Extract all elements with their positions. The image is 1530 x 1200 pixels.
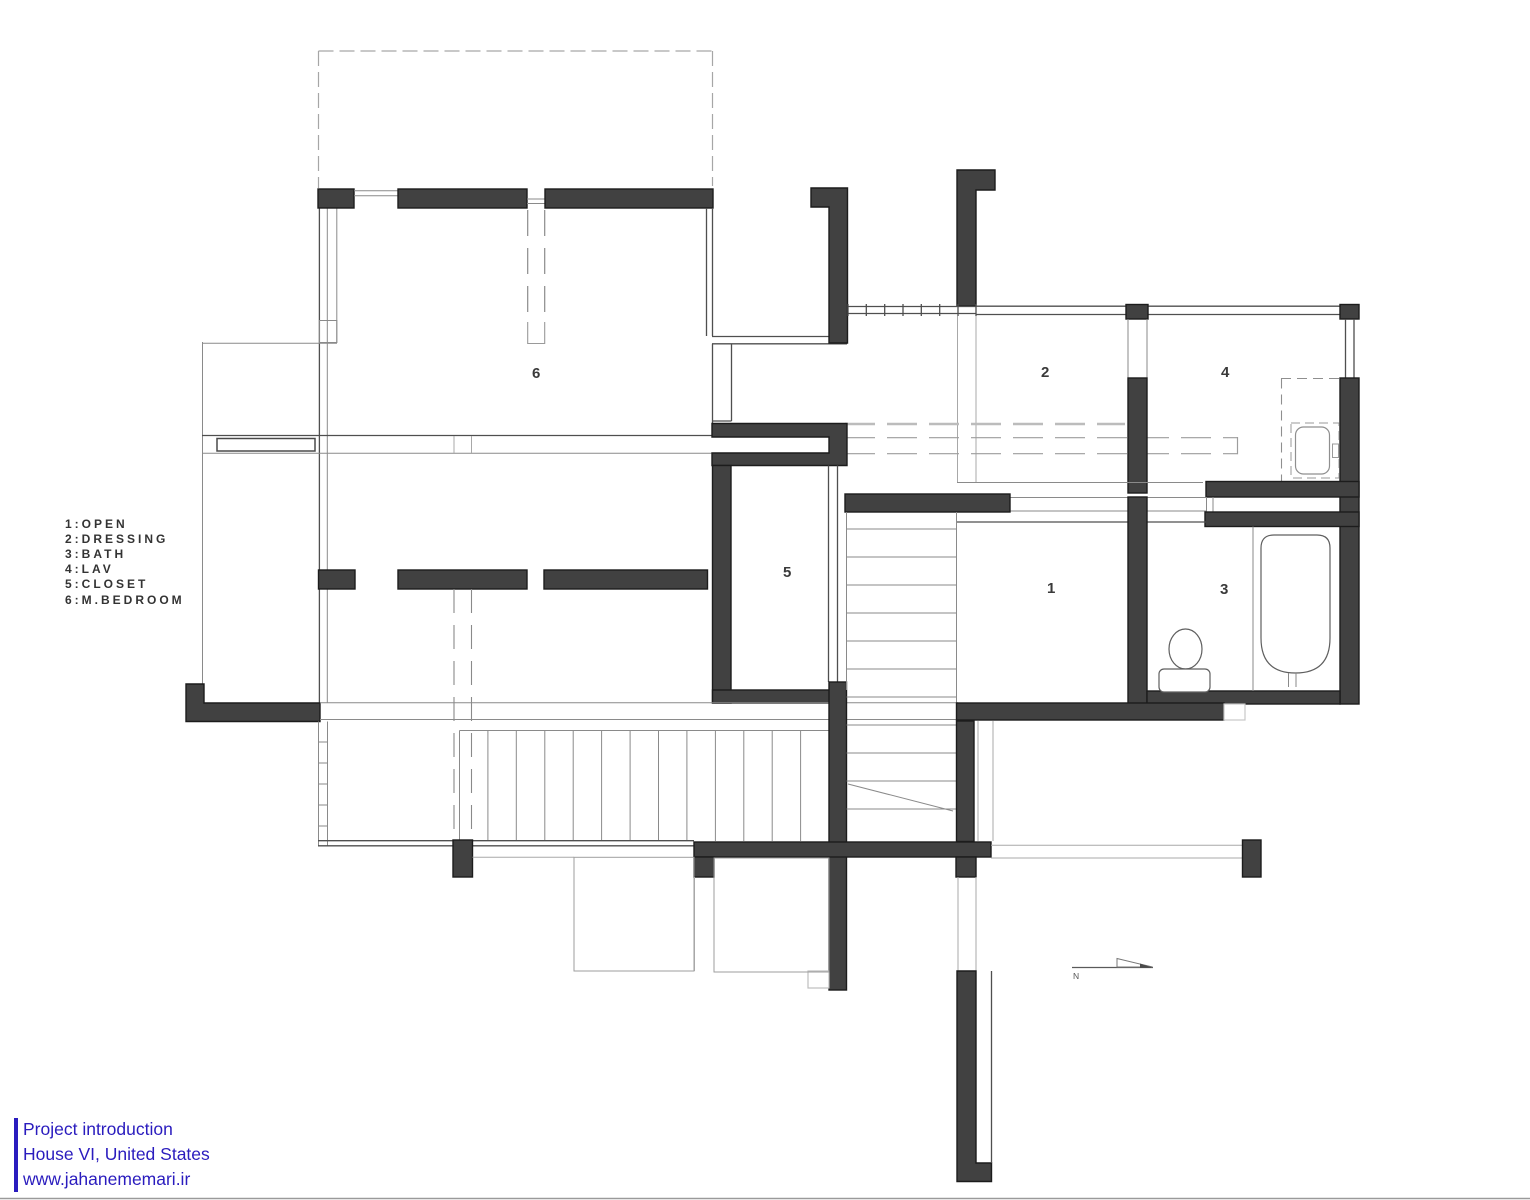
svg-text:N: N <box>1073 971 1079 981</box>
svg-text:1:OPEN: 1:OPEN <box>65 517 128 531</box>
svg-text:3: 3 <box>1220 581 1228 598</box>
svg-text:6:M.BEDROOM: 6:M.BEDROOM <box>65 593 185 607</box>
svg-text:5: 5 <box>783 564 791 581</box>
svg-text:4:LAV: 4:LAV <box>65 562 114 576</box>
svg-text:1: 1 <box>1047 580 1055 597</box>
svg-text:6: 6 <box>532 365 540 382</box>
svg-text:4: 4 <box>1221 364 1230 381</box>
svg-text:2: 2 <box>1041 364 1049 381</box>
svg-text:3:BATH: 3:BATH <box>65 547 126 561</box>
svg-text:2:DRESSING: 2:DRESSING <box>65 532 168 546</box>
svg-text:5:CLOSET: 5:CLOSET <box>65 577 148 591</box>
